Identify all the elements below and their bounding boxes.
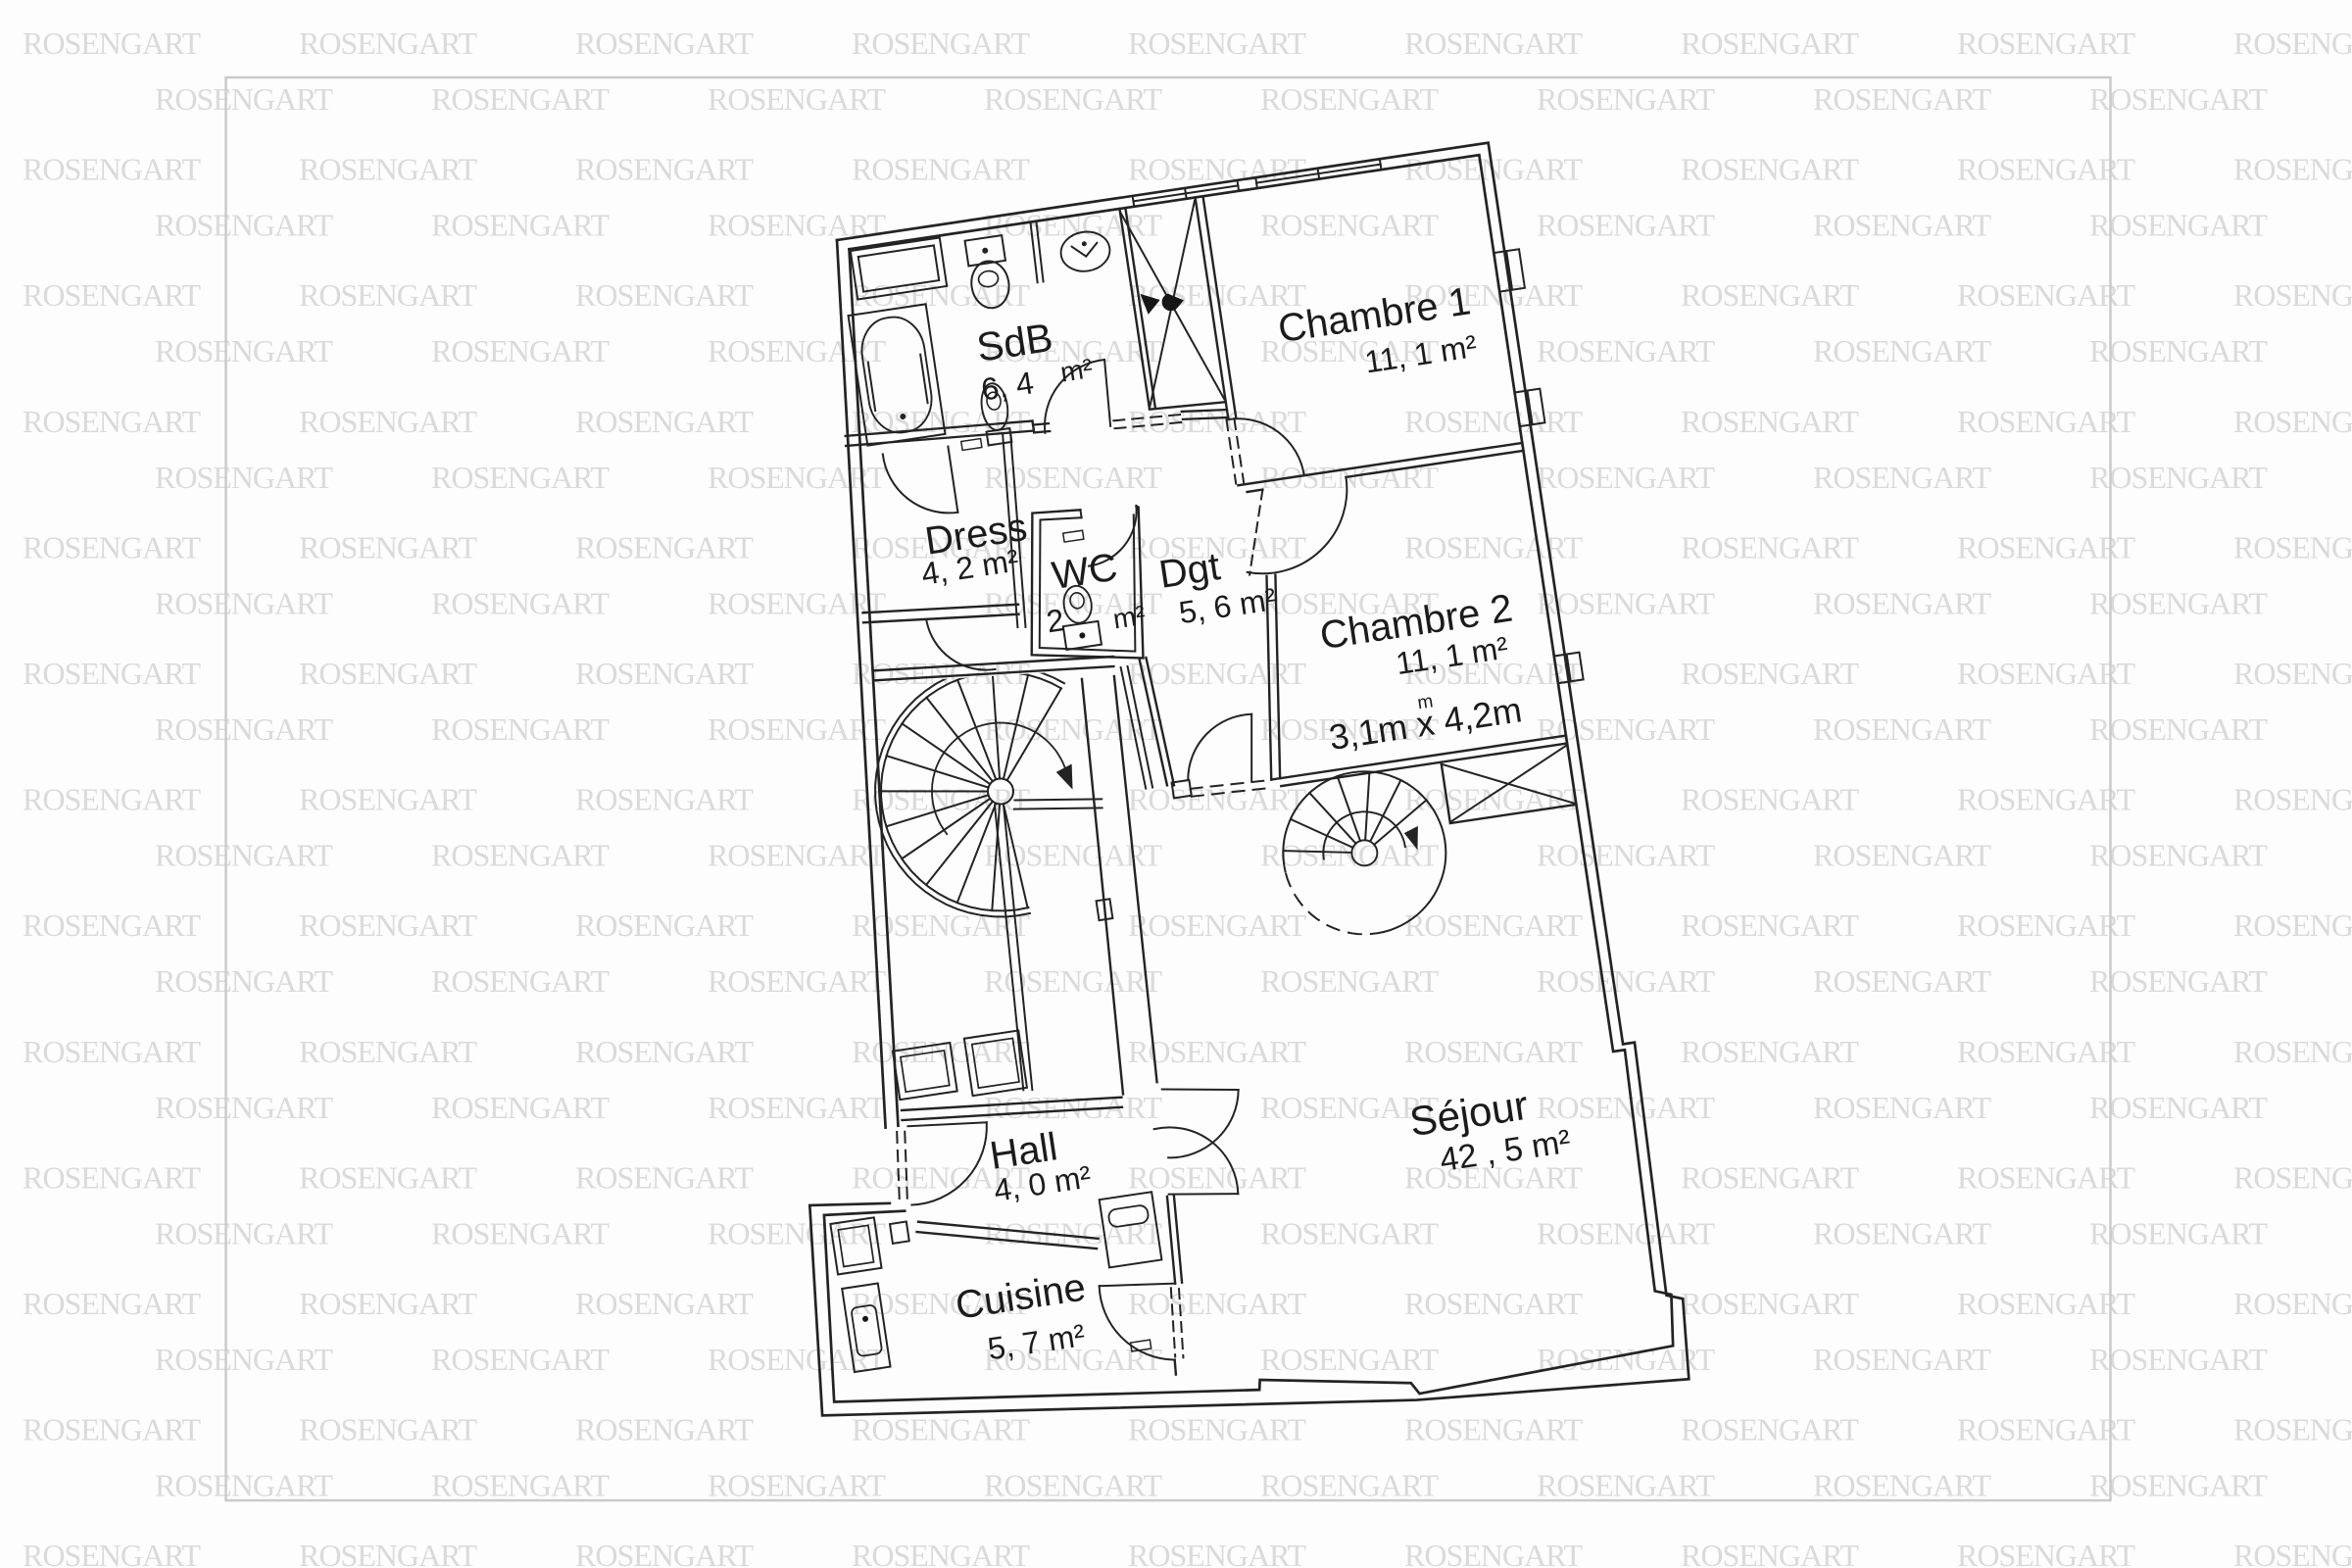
svg-text:m²: m² (1058, 353, 1095, 387)
svg-text:ROSENGART: ROSENGART (575, 277, 755, 313)
svg-text:ROSENGART: ROSENGART (23, 782, 202, 817)
svg-text:ROSENGART: ROSENGART (1128, 1538, 1307, 1568)
svg-text:ROSENGART: ROSENGART (431, 585, 611, 620)
svg-text:ROSENGART: ROSENGART (1681, 1286, 1860, 1321)
svg-text:ROSENGART: ROSENGART (1681, 1034, 1860, 1069)
svg-text:ROSENGART: ROSENGART (1128, 782, 1307, 817)
svg-text:ROSENGART: ROSENGART (2233, 1159, 2352, 1195)
svg-text:ROSENGART: ROSENGART (1128, 1412, 1307, 1447)
svg-text:ROSENGART: ROSENGART (431, 1215, 611, 1250)
svg-text:ROSENGART: ROSENGART (1957, 1538, 2136, 1568)
svg-text:ROSENGART: ROSENGART (984, 81, 1163, 117)
svg-text:ROSENGART: ROSENGART (1957, 25, 2136, 61)
svg-text:ROSENGART: ROSENGART (2089, 1090, 2269, 1125)
svg-text:ROSENGART: ROSENGART (708, 460, 887, 495)
svg-text:ROSENGART: ROSENGART (155, 1342, 334, 1377)
svg-text:ROSENGART: ROSENGART (1260, 963, 1440, 999)
svg-text:ROSENGART: ROSENGART (1957, 277, 2136, 313)
svg-text:ROSENGART: ROSENGART (2089, 333, 2269, 368)
svg-text:ROSENGART: ROSENGART (1537, 838, 1716, 873)
svg-text:ROSENGART: ROSENGART (1537, 460, 1716, 495)
svg-text:ROSENGART: ROSENGART (1537, 208, 1716, 243)
svg-text:ROSENGART: ROSENGART (1537, 1090, 1716, 1125)
svg-text:ROSENGART: ROSENGART (299, 1286, 478, 1321)
svg-text:ROSENGART: ROSENGART (1957, 529, 2136, 564)
svg-text:ROSENGART: ROSENGART (575, 1412, 755, 1447)
svg-text:ROSENGART: ROSENGART (1813, 1342, 1992, 1377)
svg-text:ROSENGART: ROSENGART (1681, 907, 1860, 943)
svg-text:ROSENGART: ROSENGART (1957, 1034, 2136, 1069)
svg-text:ROSENGART: ROSENGART (1404, 782, 1584, 817)
svg-text:ROSENGART: ROSENGART (155, 1215, 334, 1250)
svg-text:ROSENGART: ROSENGART (299, 907, 478, 943)
svg-text:ROSENGART: ROSENGART (1681, 25, 1860, 61)
svg-text:ROSENGART: ROSENGART (2233, 152, 2352, 187)
svg-text:ROSENGART: ROSENGART (431, 711, 611, 747)
svg-text:ROSENGART: ROSENGART (575, 782, 755, 817)
svg-text:ROSENGART: ROSENGART (23, 1286, 202, 1321)
svg-text:ROSENGART: ROSENGART (852, 1538, 1031, 1568)
svg-text:ROSENGART: ROSENGART (23, 25, 202, 61)
svg-text:ROSENGART: ROSENGART (1537, 333, 1716, 368)
svg-text:ROSENGART: ROSENGART (575, 1159, 755, 1195)
svg-text:ROSENGART: ROSENGART (155, 1468, 334, 1503)
svg-text:ROSENGART: ROSENGART (708, 1468, 887, 1503)
svg-text:ROSENGART: ROSENGART (23, 656, 202, 691)
svg-text:m²: m² (1111, 600, 1148, 634)
svg-text:ROSENGART: ROSENGART (1813, 711, 1992, 747)
svg-text:ROSENGART: ROSENGART (708, 838, 887, 873)
svg-text:ROSENGART: ROSENGART (155, 585, 334, 620)
svg-text:ROSENGART: ROSENGART (1537, 81, 1716, 117)
svg-text:ROSENGART: ROSENGART (299, 1538, 478, 1568)
svg-text:ROSENGART: ROSENGART (1260, 1342, 1440, 1377)
svg-text:ROSENGART: ROSENGART (2089, 963, 2269, 999)
svg-text:ROSENGART: ROSENGART (2089, 838, 2269, 873)
svg-text:Dgt: Dgt (1156, 545, 1223, 597)
svg-text:ROSENGART: ROSENGART (2233, 277, 2352, 313)
svg-text:ROSENGART: ROSENGART (984, 1468, 1163, 1503)
svg-text:ROSENGART: ROSENGART (1681, 277, 1860, 313)
svg-text:ROSENGART: ROSENGART (852, 907, 1031, 943)
svg-text:ROSENGART: ROSENGART (984, 1090, 1163, 1125)
svg-text:ROSENGART: ROSENGART (1957, 1412, 2136, 1447)
svg-text:ROSENGART: ROSENGART (2233, 1412, 2352, 1447)
svg-text:ROSENGART: ROSENGART (1681, 1159, 1860, 1195)
svg-text:ROSENGART: ROSENGART (1128, 152, 1307, 187)
svg-text:ROSENGART: ROSENGART (299, 782, 478, 817)
svg-text:ROSENGART: ROSENGART (852, 25, 1031, 61)
svg-text:ROSENGART: ROSENGART (23, 529, 202, 564)
svg-text:ROSENGART: ROSENGART (299, 1159, 478, 1195)
svg-text:ROSENGART: ROSENGART (299, 277, 478, 313)
svg-text:ROSENGART: ROSENGART (1404, 907, 1584, 943)
svg-text:ROSENGART: ROSENGART (1128, 907, 1307, 943)
svg-text:ROSENGART: ROSENGART (708, 333, 887, 368)
svg-text:ROSENGART: ROSENGART (155, 81, 334, 117)
svg-text:ROSENGART: ROSENGART (1957, 1159, 2136, 1195)
svg-text:ROSENGART: ROSENGART (2089, 460, 2269, 495)
svg-text:ROSENGART: ROSENGART (1681, 656, 1860, 691)
svg-text:ROSENGART: ROSENGART (1404, 1286, 1584, 1321)
svg-text:ROSENGART: ROSENGART (1128, 656, 1307, 691)
svg-text:ROSENGART: ROSENGART (23, 152, 202, 187)
svg-text:ROSENGART: ROSENGART (1537, 963, 1716, 999)
svg-text:ROSENGART: ROSENGART (1128, 1286, 1307, 1321)
svg-text:ROSENGART: ROSENGART (1957, 1286, 2136, 1321)
svg-text:ROSENGART: ROSENGART (1957, 782, 2136, 817)
svg-text:ROSENGART: ROSENGART (299, 404, 478, 439)
svg-text:ROSENGART: ROSENGART (1681, 152, 1860, 187)
svg-text:ROSENGART: ROSENGART (23, 1159, 202, 1195)
svg-text:ROSENGART: ROSENGART (1813, 1090, 1992, 1125)
svg-text:ROSENGART: ROSENGART (155, 460, 334, 495)
svg-text:ROSENGART: ROSENGART (2233, 404, 2352, 439)
svg-text:ROSENGART: ROSENGART (2089, 585, 2269, 620)
svg-text:ROSENGART: ROSENGART (1404, 1034, 1584, 1069)
svg-text:ROSENGART: ROSENGART (575, 529, 755, 564)
svg-text:ROSENGART: ROSENGART (852, 152, 1031, 187)
svg-text:ROSENGART: ROSENGART (431, 1468, 611, 1503)
svg-text:ROSENGART: ROSENGART (1404, 404, 1584, 439)
svg-text:ROSENGART: ROSENGART (1128, 25, 1307, 61)
svg-text:ROSENGART: ROSENGART (575, 152, 755, 187)
svg-text:ROSENGART: ROSENGART (575, 907, 755, 943)
svg-text:ROSENGART: ROSENGART (575, 656, 755, 691)
svg-text:ROSENGART: ROSENGART (1260, 208, 1440, 243)
svg-text:ROSENGART: ROSENGART (431, 81, 611, 117)
svg-text:ROSENGART: ROSENGART (1537, 1215, 1716, 1250)
svg-text:ROSENGART: ROSENGART (1957, 404, 2136, 439)
svg-text:ROSENGART: ROSENGART (155, 711, 334, 747)
svg-text:ROSENGART: ROSENGART (984, 460, 1163, 495)
svg-text:ROSENGART: ROSENGART (1404, 1538, 1584, 1568)
svg-text:ROSENGART: ROSENGART (155, 838, 334, 873)
svg-text:ROSENGART: ROSENGART (155, 208, 334, 243)
svg-text:ROSENGART: ROSENGART (1260, 81, 1440, 117)
svg-text:ROSENGART: ROSENGART (1681, 782, 1860, 817)
svg-text:ROSENGART: ROSENGART (2233, 1034, 2352, 1069)
svg-text:ROSENGART: ROSENGART (1404, 25, 1584, 61)
svg-text:ROSENGART: ROSENGART (1404, 529, 1584, 564)
svg-text:ROSENGART: ROSENGART (2233, 25, 2352, 61)
svg-text:ROSENGART: ROSENGART (431, 333, 611, 368)
svg-text:ROSENGART: ROSENGART (852, 1412, 1031, 1447)
svg-text:ROSENGART: ROSENGART (708, 81, 887, 117)
svg-text:ROSENGART: ROSENGART (299, 656, 478, 691)
svg-text:ROSENGART: ROSENGART (1813, 333, 1992, 368)
svg-text:ROSENGART: ROSENGART (2089, 81, 2269, 117)
svg-text:ROSENGART: ROSENGART (431, 460, 611, 495)
svg-text:ROSENGART: ROSENGART (575, 25, 755, 61)
svg-text:ROSENGART: ROSENGART (431, 1090, 611, 1125)
svg-text:ROSENGART: ROSENGART (575, 1034, 755, 1069)
svg-text:ROSENGART: ROSENGART (299, 152, 478, 187)
svg-text:ROSENGART: ROSENGART (23, 1538, 202, 1568)
svg-text:ROSENGART: ROSENGART (23, 277, 202, 313)
svg-text:ROSENGART: ROSENGART (431, 1342, 611, 1377)
svg-text:ROSENGART: ROSENGART (1957, 907, 2136, 943)
svg-text:ROSENGART: ROSENGART (23, 404, 202, 439)
svg-text:ROSENGART: ROSENGART (708, 1090, 887, 1125)
svg-text:ROSENGART: ROSENGART (2089, 208, 2269, 243)
svg-text:ROSENGART: ROSENGART (299, 1034, 478, 1069)
svg-text:ROSENGART: ROSENGART (155, 333, 334, 368)
svg-text:ROSENGART: ROSENGART (2233, 782, 2352, 817)
svg-text:ROSENGART: ROSENGART (1813, 81, 1992, 117)
svg-text:ROSENGART: ROSENGART (23, 1412, 202, 1447)
svg-text:ROSENGART: ROSENGART (2089, 1342, 2269, 1377)
svg-text:ROSENGART: ROSENGART (1957, 656, 2136, 691)
svg-text:ROSENGART: ROSENGART (575, 1538, 755, 1568)
svg-text:ROSENGART: ROSENGART (2233, 1538, 2352, 1568)
svg-text:ROSENGART: ROSENGART (2089, 1215, 2269, 1250)
svg-text:ROSENGART: ROSENGART (1813, 208, 1992, 243)
svg-text:ROSENGART: ROSENGART (708, 711, 887, 747)
svg-text:ROSENGART: ROSENGART (708, 1215, 887, 1250)
svg-text:ROSENGART: ROSENGART (431, 208, 611, 243)
svg-text:ROSENGART: ROSENGART (1681, 529, 1860, 564)
svg-text:ROSENGART: ROSENGART (431, 838, 611, 873)
svg-text:ROSENGART: ROSENGART (155, 1090, 334, 1125)
svg-text:ROSENGART: ROSENGART (1813, 963, 1992, 999)
svg-text:ROSENGART: ROSENGART (2233, 656, 2352, 691)
svg-text:ROSENGART: ROSENGART (1813, 1215, 1992, 1250)
svg-text:ROSENGART: ROSENGART (2233, 1286, 2352, 1321)
svg-text:ROSENGART: ROSENGART (1537, 585, 1716, 620)
svg-text:ROSENGART: ROSENGART (575, 1286, 755, 1321)
svg-text:ROSENGART: ROSENGART (2089, 711, 2269, 747)
svg-text:ROSENGART: ROSENGART (1260, 1215, 1440, 1250)
svg-text:ROSENGART: ROSENGART (299, 25, 478, 61)
svg-text:ROSENGART: ROSENGART (155, 963, 334, 999)
svg-text:ROSENGART: ROSENGART (2233, 907, 2352, 943)
svg-text:ROSENGART: ROSENGART (1813, 585, 1992, 620)
svg-text:ROSENGART: ROSENGART (23, 907, 202, 943)
svg-text:ROSENGART: ROSENGART (1813, 838, 1992, 873)
svg-text:ROSENGART: ROSENGART (575, 404, 755, 439)
svg-text:ROSENGART: ROSENGART (708, 963, 887, 999)
svg-text:ROSENGART: ROSENGART (1681, 404, 1860, 439)
svg-text:ROSENGART: ROSENGART (2089, 1468, 2269, 1503)
svg-text:ROSENGART: ROSENGART (1681, 1412, 1860, 1447)
svg-text:ROSENGART: ROSENGART (1813, 460, 1992, 495)
svg-text:ROSENGART: ROSENGART (299, 1412, 478, 1447)
svg-text:ROSENGART: ROSENGART (1681, 1538, 1860, 1568)
svg-text:ROSENGART: ROSENGART (1537, 1468, 1716, 1503)
svg-text:ROSENGART: ROSENGART (431, 963, 611, 999)
svg-text:m: m (1416, 691, 1435, 713)
svg-text:ROSENGART: ROSENGART (1128, 1159, 1307, 1195)
svg-text:ROSENGART: ROSENGART (1813, 1468, 1992, 1503)
svg-text:ROSENGART: ROSENGART (2233, 529, 2352, 564)
svg-text:ROSENGART: ROSENGART (708, 585, 887, 620)
svg-text:ROSENGART: ROSENGART (299, 529, 478, 564)
svg-text:ROSENGART: ROSENGART (1260, 1468, 1440, 1503)
svg-text:ROSENGART: ROSENGART (1404, 1412, 1584, 1447)
svg-text:ROSENGART: ROSENGART (852, 277, 1031, 313)
svg-text:ROSENGART: ROSENGART (23, 1034, 202, 1069)
svg-text:ROSENGART: ROSENGART (1957, 152, 2136, 187)
